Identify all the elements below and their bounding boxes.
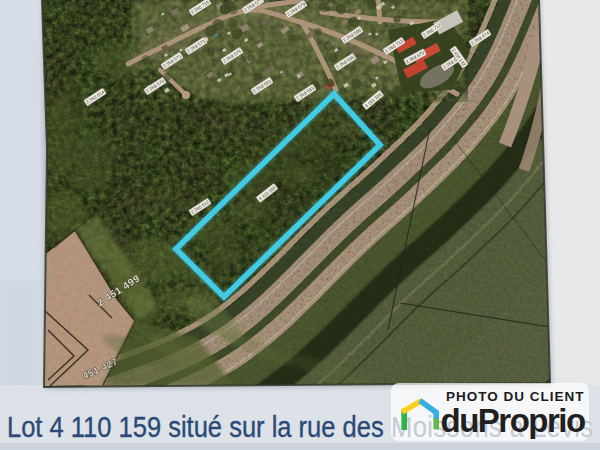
svg-text:Lot 4 110 159 situé sur la rue: Lot 4 110 159 situé sur la rue des xyxy=(7,410,384,443)
svg-text:duProprio: duProprio xyxy=(441,402,585,439)
